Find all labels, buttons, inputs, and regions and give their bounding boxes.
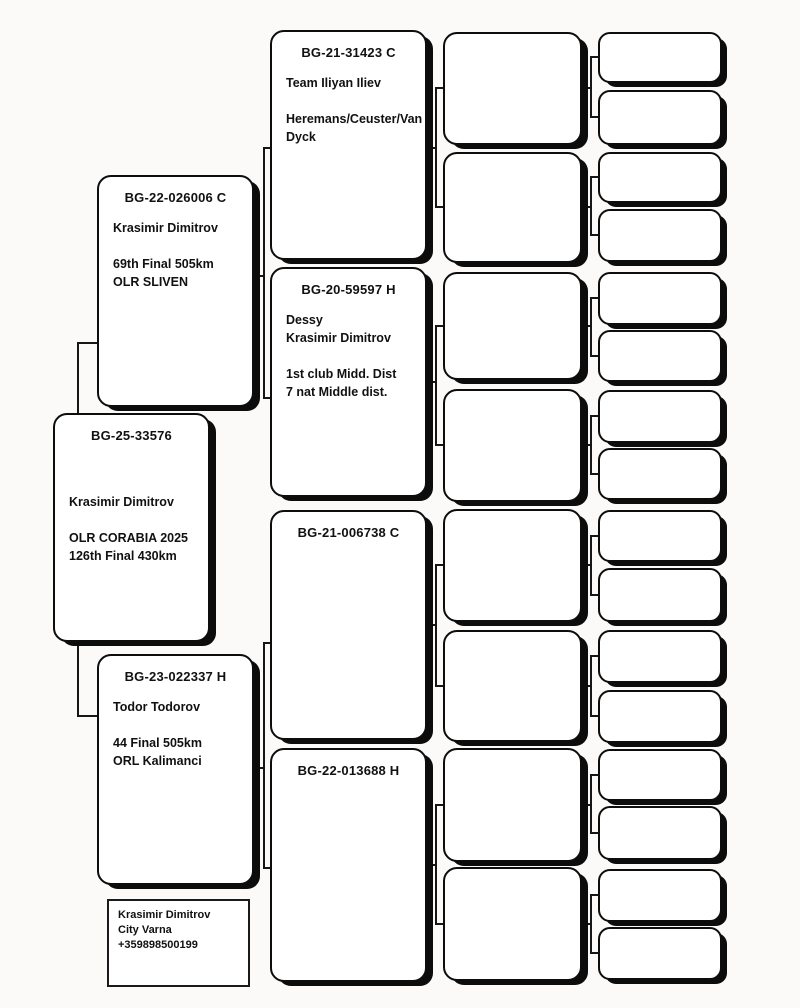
grandparent-box-4: BG-22-013688 H: [270, 748, 427, 982]
great-grandparent-slot-7: [443, 748, 582, 862]
gg-grandparent-slot-12: [598, 690, 722, 743]
great-grandparent-slot-1: [443, 32, 582, 145]
father-details: Krasimir Dimitrov 69th Final 505km OLR S…: [99, 219, 252, 291]
grandparent-1-ring-number: BG-21-31423 C: [272, 45, 425, 60]
subject-race-2: 126th Final 430km: [69, 547, 198, 565]
gg-grandparent-slot-4: [598, 209, 722, 262]
gg-grandparent-slot-7: [598, 390, 722, 443]
gg-grandparent-slot-2: [598, 90, 722, 145]
great-grandparent-slot-6: [443, 630, 582, 742]
great-grandparent-slot-8: [443, 867, 582, 981]
grandparent-box-1: BG-21-31423 C Team Iliyan Iliev Heremans…: [270, 30, 427, 260]
text-line: [69, 475, 198, 493]
gg-grandparent-slot-10: [598, 568, 722, 622]
text-line: [286, 92, 415, 110]
grandparent-2-owner: Krasimir Dimitrov: [286, 329, 415, 347]
gg-grandparent-slot-3: [598, 152, 722, 203]
gg-grandparent-slot-11: [598, 630, 722, 683]
mother-race-2: ORL Kalimanci: [113, 752, 242, 770]
subject-details: Krasimir Dimitrov OLR CORABIA 2025 126th…: [55, 457, 208, 565]
subject-race-1: OLR CORABIA 2025: [69, 529, 198, 547]
gg-grandparent-slot-1: [598, 32, 722, 83]
father-ring-number: BG-22-026006 C: [99, 190, 252, 205]
subject-ring-number: BG-25-33576: [55, 428, 208, 443]
grandparent-2-race-2: 7 nat Middle dist.: [286, 383, 415, 401]
gg-grandparent-slot-15: [598, 869, 722, 922]
breeder-city: City Varna: [118, 923, 242, 938]
breeder-name: Krasimir Dimitrov: [118, 908, 242, 923]
pedigree-chart: BG-25-33576 Krasimir Dimitrov OLR CORABI…: [0, 0, 800, 1008]
gg-grandparent-slot-5: [598, 272, 722, 325]
grandparent-4-ring-number: BG-22-013688 H: [272, 763, 425, 778]
grandparent-box-3: BG-21-006738 C: [270, 510, 427, 740]
grandparent-2-ring-number: BG-20-59597 H: [272, 282, 425, 297]
great-grandparent-slot-5: [443, 509, 582, 622]
grandparent-2-race-1: 1st club Midd. Dist: [286, 365, 415, 383]
great-grandparent-slot-3: [443, 272, 582, 380]
grandparent-3-ring-number: BG-21-006738 C: [272, 525, 425, 540]
gg-grandparent-slot-8: [598, 448, 722, 500]
father-race-2: OLR SLIVEN: [113, 273, 242, 291]
father-box: BG-22-026006 C Krasimir Dimitrov 69th Fi…: [97, 175, 254, 407]
great-grandparent-slot-4: [443, 389, 582, 502]
grandparent-1-owner: Team Iliyan Iliev: [286, 74, 415, 92]
father-owner: Krasimir Dimitrov: [113, 219, 242, 237]
text-line: [69, 457, 198, 475]
mother-owner: Todor Todorov: [113, 698, 242, 716]
breeder-contact-box: Krasimir Dimitrov City Varna +3598985001…: [107, 899, 250, 987]
grandparent-2-name: Dessy: [286, 311, 415, 329]
text-line: [113, 716, 242, 734]
subject-box: BG-25-33576 Krasimir Dimitrov OLR CORABI…: [53, 413, 210, 642]
mother-details: Todor Todorov 44 Final 505km ORL Kaliman…: [99, 698, 252, 770]
grandparent-box-2: BG-20-59597 H Dessy Krasimir Dimitrov 1s…: [270, 267, 427, 497]
gg-grandparent-slot-9: [598, 510, 722, 562]
breeder-phone: +359898500199: [118, 938, 242, 953]
mother-race-1: 44 Final 505km: [113, 734, 242, 752]
gg-grandparent-slot-13: [598, 749, 722, 801]
subject-owner: Krasimir Dimitrov: [69, 493, 198, 511]
text-line: [286, 347, 415, 365]
mother-ring-number: BG-23-022337 H: [99, 669, 252, 684]
father-race-1: 69th Final 505km: [113, 255, 242, 273]
grandparent-1-details: Team Iliyan Iliev Heremans/Ceuster/Van D…: [272, 74, 425, 146]
text-line: [69, 511, 198, 529]
text-line: [113, 237, 242, 255]
gg-grandparent-slot-16: [598, 927, 722, 980]
mother-box: BG-23-022337 H Todor Todorov 44 Final 50…: [97, 654, 254, 885]
grandparent-2-details: Dessy Krasimir Dimitrov 1st club Midd. D…: [272, 311, 425, 401]
gg-grandparent-slot-6: [598, 330, 722, 382]
gg-grandparent-slot-14: [598, 806, 722, 860]
great-grandparent-slot-2: [443, 152, 582, 263]
grandparent-1-strain: Heremans/Ceuster/Van Dyck: [286, 110, 415, 146]
